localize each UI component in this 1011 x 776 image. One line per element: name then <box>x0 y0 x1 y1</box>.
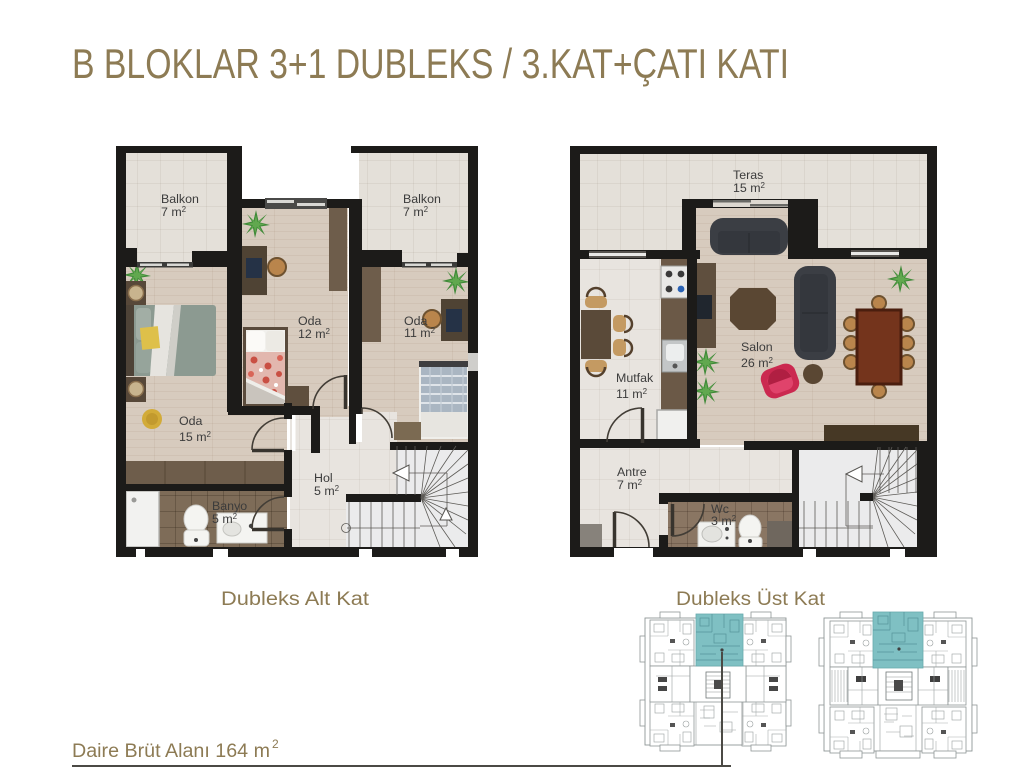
svg-text:Teras: Teras <box>733 168 763 182</box>
svg-text:B BLOKLAR 3+1 DUBLEKS / 3.KAT+: B BLOKLAR 3+1 DUBLEKS / 3.KAT+ÇATI KATI <box>72 40 789 87</box>
svg-text:Salon: Salon <box>741 340 773 354</box>
svg-text:2: 2 <box>272 737 279 751</box>
svg-text:Dubleks Üst Kat: Dubleks Üst Kat <box>676 589 826 610</box>
svg-text:Oda: Oda <box>179 414 203 428</box>
svg-text:Daire Brüt Alanı 164 m: Daire Brüt Alanı 164 m <box>72 741 270 762</box>
svg-text:Banyo: Banyo <box>212 499 247 513</box>
svg-text:Antre: Antre <box>617 465 647 479</box>
svg-text:Dubleks Alt Kat: Dubleks Alt Kat <box>221 589 370 610</box>
svg-text:Balkon: Balkon <box>161 192 199 206</box>
svg-text:Mutfak: Mutfak <box>616 371 654 385</box>
svg-text:Balkon: Balkon <box>403 192 441 206</box>
svg-text:Oda: Oda <box>298 314 322 328</box>
svg-text:Hol: Hol <box>314 471 333 485</box>
